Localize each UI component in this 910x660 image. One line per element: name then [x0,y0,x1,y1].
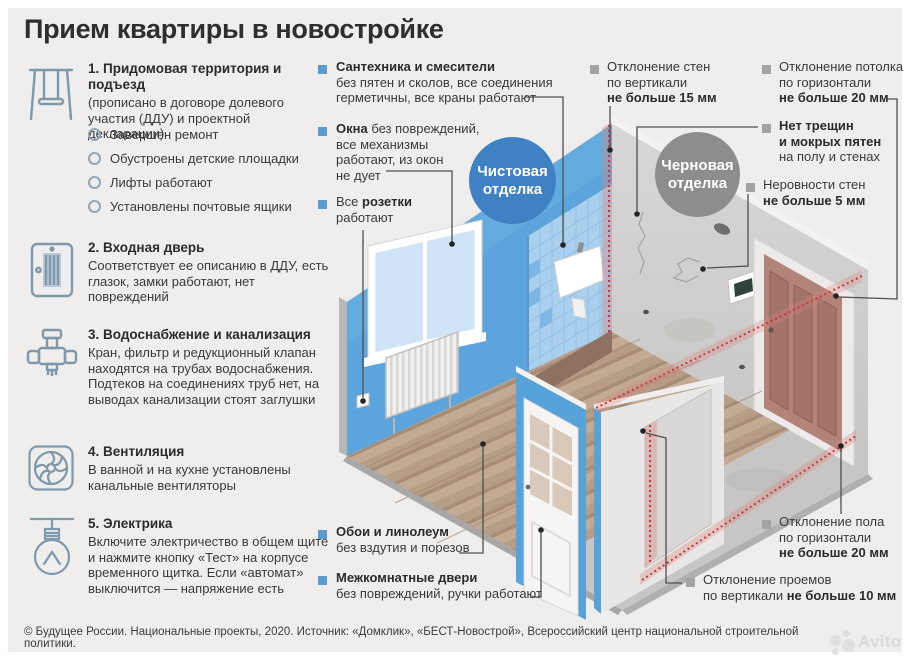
square-bullet-icon [318,200,327,209]
checklist-item-3: 3. Водоснабжение и канализация Кран, фил… [88,327,334,407]
callout-windows: Окна без повреждений, все механизмы рабо… [336,121,479,183]
circle-bullet-icon [88,152,101,165]
checklist-item-2: 2. Входная дверь Соответствует ее описан… [88,240,332,305]
square-bullet-icon [318,65,327,74]
item-heading: Придомовая территория и подъезд [88,61,281,92]
square-bullet-icon [318,576,327,585]
square-bullet-icon [318,127,327,136]
corner-deviation-line [602,122,612,338]
rough-finish-badge: Черновая отделка [655,132,740,217]
checklist-item-4: 4. Вентиляция В ванной и на кухне устано… [88,444,340,493]
circle-bullet-icon [88,128,101,141]
callout-wall-evenness: Неровности стен не больше 5 мм [763,177,865,208]
swing-icon [28,64,74,122]
infographic: Прием квартиры в новостройке 1. Придомов… [0,0,910,660]
callout-walls-vertical: Отклонение стен по вертикали не больше 1… [607,59,717,106]
outlet-hole [739,365,745,369]
checklist-subitem: Завершен ремонт [88,127,219,142]
circle-bullet-icon [88,200,101,213]
callout-interior-doors: Межкомнатные двери без повреждений, ручк… [336,570,542,601]
avito-logo-icon [830,629,856,655]
entrance-door-icon [30,242,74,298]
callout-sockets: Все розетки работают [336,194,412,225]
checklist-subitem: Установлены почтовые ящики [88,199,292,214]
callout-plumbing: Сантехника и смесители без пятен и сколо… [336,59,553,106]
avito-watermark: Avito [830,629,901,655]
light-bulb-icon [30,516,74,580]
circle-bullet-icon [88,176,101,189]
square-bullet-icon [318,530,327,539]
door-handle [526,485,531,490]
callout-no-cracks: Нет трещин и мокрых пятен на полу и стен… [779,118,881,165]
clean-finish-badge: Чистовая отделка [469,137,556,224]
fan-icon [28,445,74,491]
callout-ceiling: Отклонение потолка по горизонтали не бол… [779,59,903,106]
item-number: 1. [88,61,99,76]
square-bullet-icon [590,65,599,74]
checklist-item-5: 5. Электрика Включите электричество в об… [88,516,330,596]
callout-wallpaper: Обои и линолеум без вздутия и порезов [336,524,469,555]
square-bullet-icon [762,124,771,133]
door-handle [768,327,773,332]
checklist-subitem: Обустроены детские площадки [88,151,299,166]
callout-openings: Отклонение проемов по вертикали не больш… [703,572,896,603]
checklist-subitem: Лифты работают [88,175,212,190]
water-pipe-icon [26,328,78,382]
callout-floor-level: Отклонение пола по горизонтали не больше… [779,514,889,561]
page-title: Прием квартиры в новостройке [24,14,444,45]
square-bullet-icon [762,65,771,74]
square-bullet-icon [686,578,695,587]
outlet-hole [643,310,649,314]
square-bullet-icon [746,183,755,192]
footer-credits: © Будущее России. Национальные проекты, … [24,626,834,650]
square-bullet-icon [762,520,771,529]
